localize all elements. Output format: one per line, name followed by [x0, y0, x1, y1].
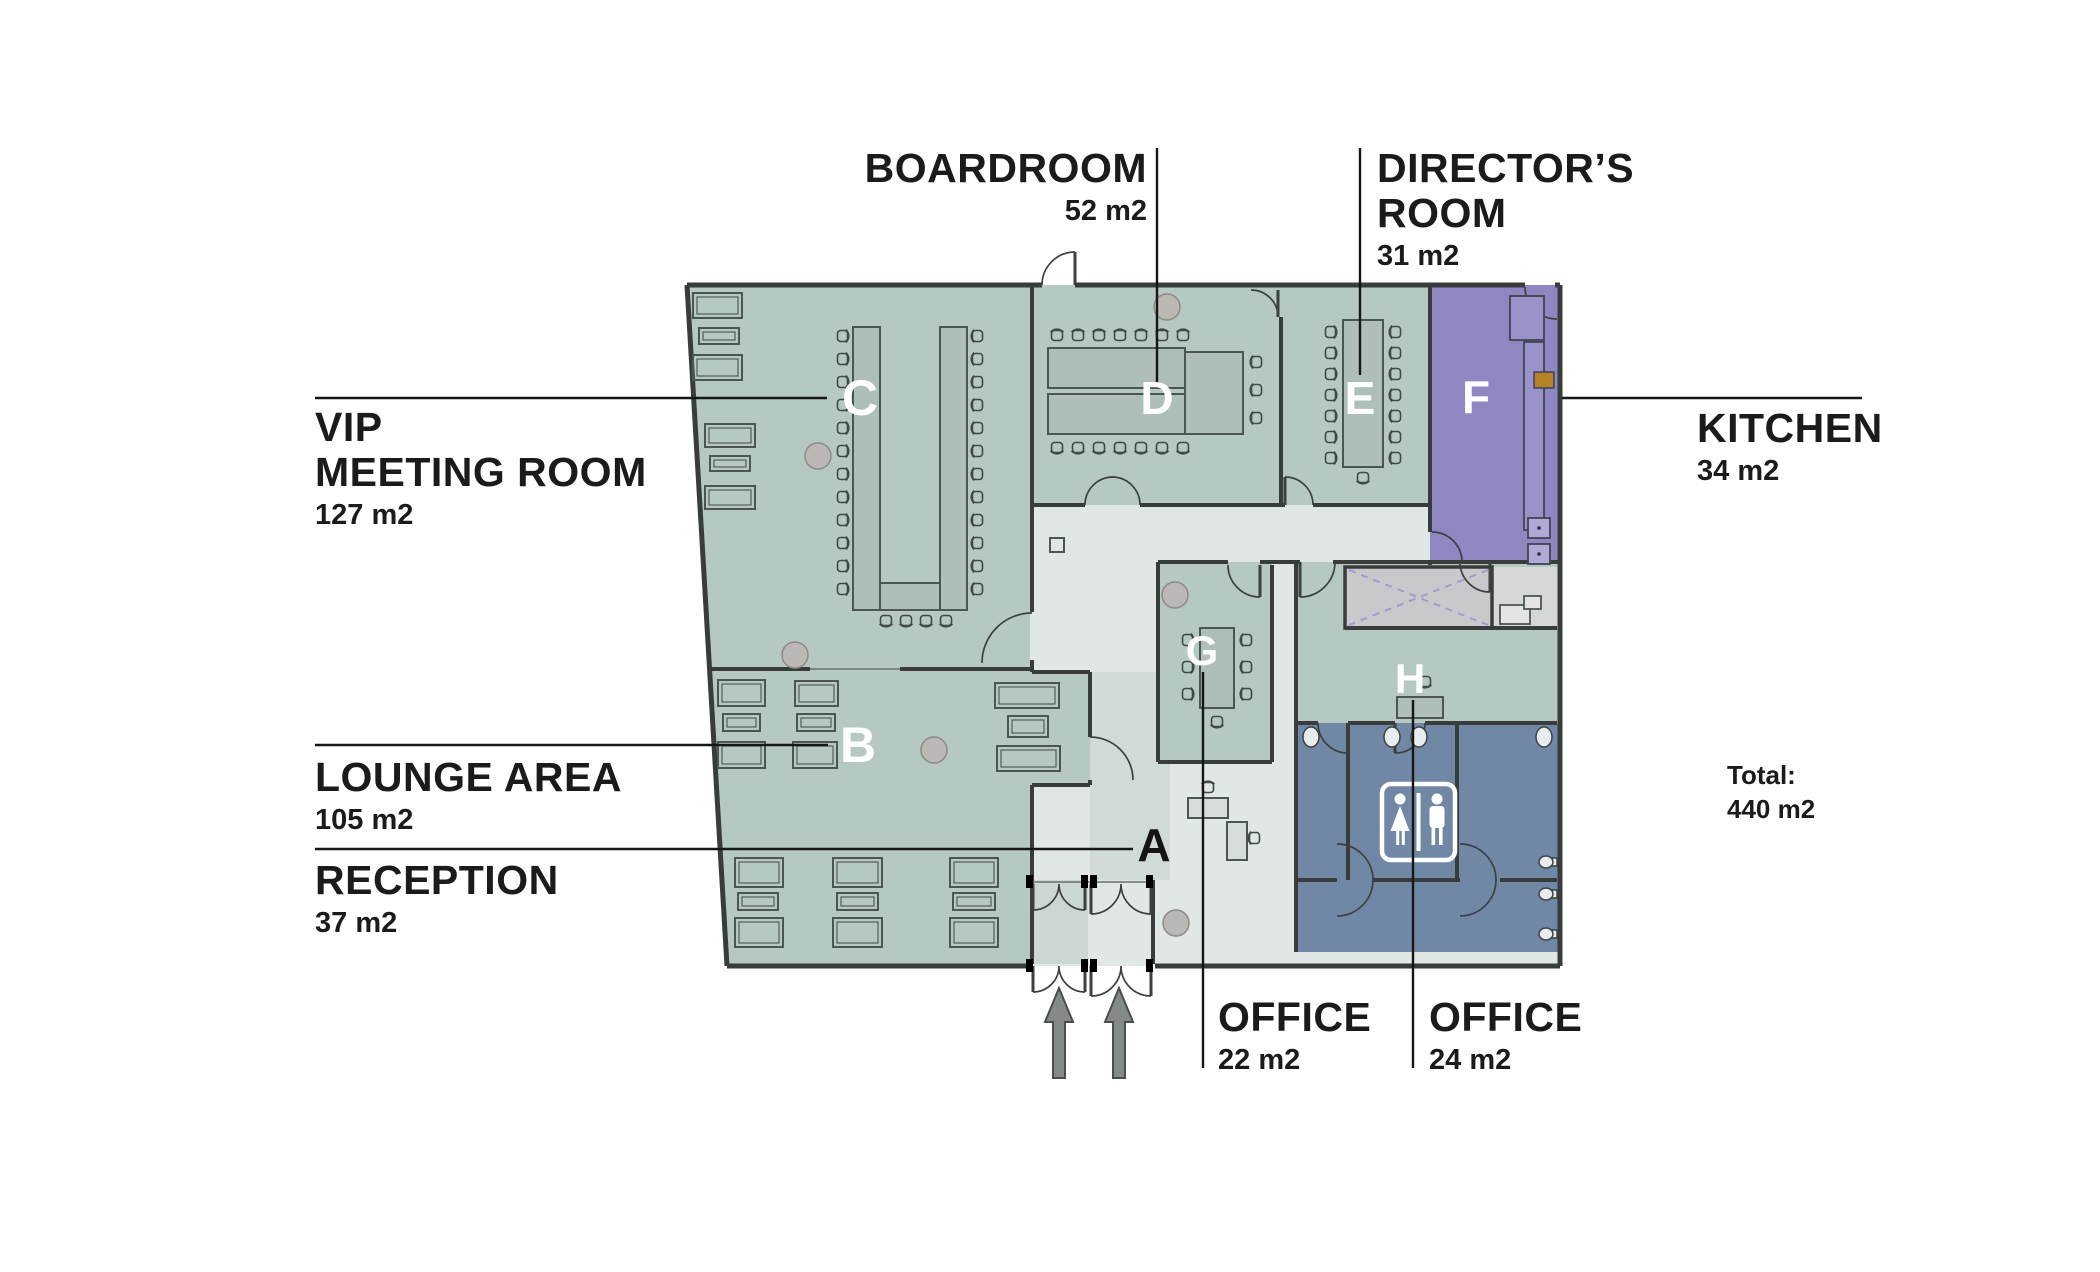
room-letter-b: B [840, 717, 876, 773]
entrance-arrow-icon [1105, 988, 1133, 1078]
kitchen-label-area: 34 m2 [1697, 454, 1883, 488]
office-h-label: OFFICE 24 m2 [1429, 995, 1582, 1077]
vip-label-area: 127 m2 [315, 498, 647, 532]
room-letter-a: A [1137, 819, 1170, 871]
vip-table-bottom [880, 583, 940, 610]
kitchen-label: KITCHEN 34 m2 [1697, 406, 1883, 488]
office-g-label-title: OFFICE [1218, 995, 1371, 1040]
total-label: Total: 440 m2 [1727, 758, 1815, 826]
room-letter-d: D [1140, 372, 1173, 424]
total-label-text: Total: [1727, 758, 1815, 792]
vip-label: VIP MEETING ROOM 127 m2 [315, 405, 647, 532]
reception-label-area: 37 m2 [315, 906, 559, 940]
office-g-label-area: 22 m2 [1218, 1043, 1371, 1077]
office-h-label-title: OFFICE [1429, 995, 1582, 1040]
lounge-label-title: LOUNGE AREA [315, 755, 622, 800]
reception-label-title: RECEPTION [315, 858, 559, 903]
office-g-label: OFFICE 22 m2 [1218, 995, 1371, 1077]
directors-label-line1: DIRECTOR’S [1377, 146, 1634, 191]
room-letter-c: C [842, 370, 878, 426]
kitchen-counter [1524, 342, 1544, 530]
lounge-label-area: 105 m2 [315, 803, 622, 837]
kitchen-sink [1534, 372, 1554, 388]
corridor-desk-2 [1227, 822, 1247, 860]
ceiling-dot [805, 443, 831, 469]
total-label-value: 440 m2 [1727, 792, 1815, 826]
boardroom-label-title: BOARDROOM [865, 146, 1147, 191]
entrance-arrow-icon [1045, 988, 1073, 1078]
room-letter-f: F [1462, 371, 1490, 423]
office-h-label-area: 24 m2 [1429, 1043, 1582, 1077]
ceiling-dot [1163, 910, 1189, 936]
ceiling-dot [921, 737, 947, 763]
room-letter-e: E [1345, 372, 1376, 424]
boardroom-table-end [1185, 352, 1243, 434]
boardroom-label: BOARDROOM 52 m2 [865, 146, 1147, 228]
boardroom-label-area: 52 m2 [865, 194, 1147, 228]
kitchen-cabinet [1510, 296, 1544, 340]
vip-table-right [940, 327, 967, 610]
directors-label-area: 31 m2 [1377, 239, 1634, 273]
room-letter-g: G [1186, 627, 1219, 674]
reception-label: RECEPTION 37 m2 [315, 858, 559, 940]
lounge-label: LOUNGE AREA 105 m2 [315, 755, 622, 837]
directors-label: DIRECTOR’S ROOM 31 m2 [1377, 146, 1634, 273]
entrance-arrows [1045, 988, 1133, 1078]
ceiling-dot [782, 642, 808, 668]
directors-label-line2: ROOM [1377, 191, 1634, 236]
floor-plan-page: A B C D E F G H VIP MEETING ROOM 127 m2 … [0, 0, 2100, 1272]
toilets-floor [1296, 723, 1560, 952]
vip-label-line2: MEETING ROOM [315, 450, 647, 495]
room-letter-h: H [1395, 655, 1425, 702]
ceiling-dot [1162, 582, 1188, 608]
utility-item-2 [1524, 596, 1541, 609]
corridor-desk-1 [1188, 798, 1228, 818]
vip-label-line1: VIP [315, 405, 647, 450]
kitchen-label-title: KITCHEN [1697, 406, 1883, 451]
